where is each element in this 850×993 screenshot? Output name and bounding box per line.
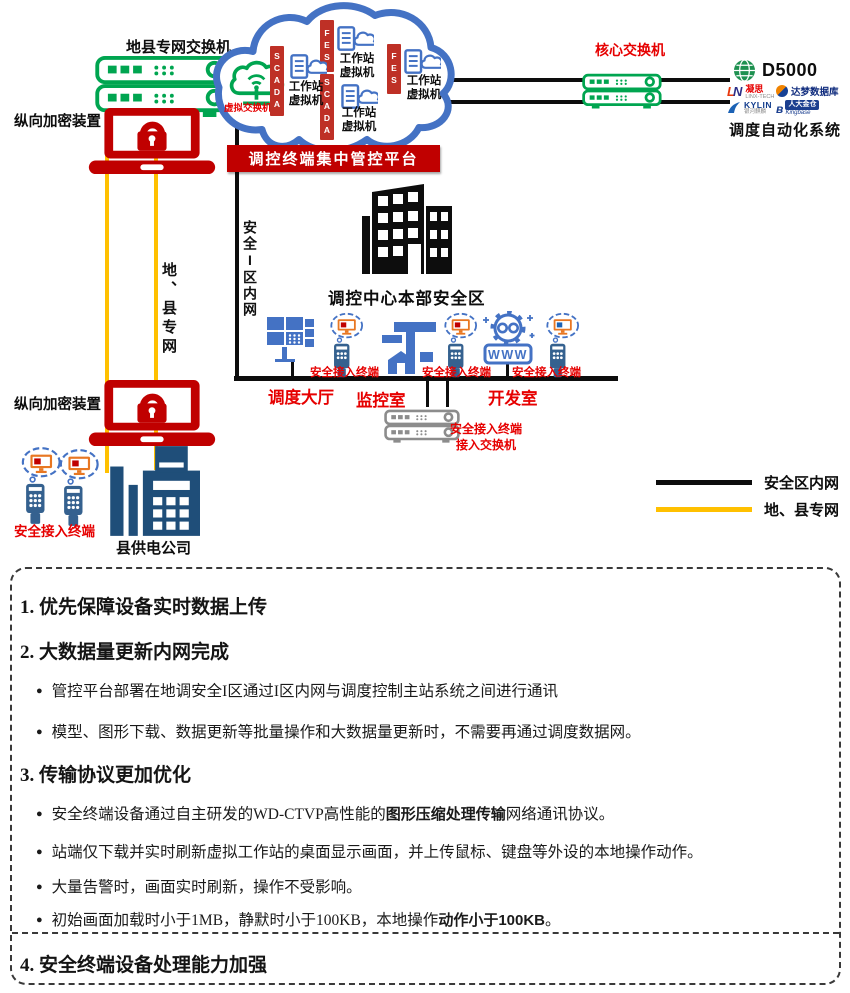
county-company-label: 县供电公司	[116, 537, 191, 558]
linx-mark-icon: LN	[727, 84, 742, 99]
workstation-vm-label: 工作站虚拟机	[338, 107, 380, 134]
network-architecture-diagram: 地县专网交换机 纵向加密装置 地、县专网 纵向加密装置	[0, 0, 850, 993]
virtual-switch-label: 虚拟交换机	[224, 100, 272, 114]
fes-bar-2: FES	[387, 44, 401, 94]
bullet-text: 初始画面加载时小于1MB，静默时小于100KB，本地操作动作小于100KB。	[52, 912, 561, 929]
workstation-vm-icon	[341, 82, 378, 110]
panel-heading-4: 4. 安全终端设备处理能力加强	[20, 950, 267, 977]
bullet-text: 大量告警时，画面实时刷新，操作不受影响。	[52, 879, 362, 896]
kylin-logo: KYLIN 银河麒麟	[727, 100, 772, 116]
annotation-panel: 1. 优先保障设备实时数据上传 2. 大数据量更新内网完成 ●管控平台部署在地调…	[10, 567, 841, 985]
encryptor-2-icon	[88, 380, 216, 448]
secure-terminal-label: 安全接入终端	[512, 364, 581, 380]
bullet-text: 模型、图形下载、数据更新等批量操作和大数据量更新时，不需要再通过调度数据网。	[52, 724, 641, 741]
legend-intranet-line	[656, 480, 752, 485]
bullet-text: 安全终端设备通过自主研发的WD-CTVP高性能的图形压缩处理传输网络通讯协议。	[52, 806, 615, 823]
bullet-item: ●大量告警时，画面实时刷新，操作不受影响。	[36, 875, 362, 897]
video-wall-icon	[266, 317, 326, 363]
secure-terminal-label: 安全接入终端	[422, 364, 491, 380]
bullet-item: ●管控平台部署在地调安全I区通过I区内网与调度控制主站系统之间进行通讯	[36, 679, 558, 701]
access-switch-line-1	[426, 379, 429, 407]
kylin-horse-icon	[727, 101, 741, 114]
bullet-item: ●安全终端设备通过自主研发的WD-CTVP高性能的图形压缩处理传输网络通讯协议。	[36, 802, 614, 824]
legend-intranet-label: 安全区内网	[764, 472, 839, 493]
workstation-vm-label: 工作站虚拟机	[285, 81, 327, 108]
legend-private-net-line	[656, 507, 752, 512]
kylin-sublabel: 银河麒麟	[744, 110, 772, 116]
secure-terminal-icon	[52, 448, 100, 528]
bullet-dot: ●	[36, 726, 43, 738]
bullet-item: ●初始画面加载时小于1MB，静默时小于100KB，本地操作动作小于100KB。	[36, 908, 561, 930]
bullet-item: ●模型、图形下载、数据更新等批量操作和大数据量更新时，不需要再通过调度数据网。	[36, 720, 641, 742]
panel-heading-1: 1. 优先保障设备实时数据上传	[20, 592, 267, 619]
panel-divider	[12, 932, 839, 934]
county-net-vertical-label: 地、县专网	[158, 262, 179, 357]
d5000-globe-icon	[733, 59, 756, 82]
bullet-item: ●站端仅下载并实时刷新虚拟工作站的桌面显示画面，并上传鼠标、键盘等外设的本地操作…	[36, 840, 703, 862]
kingbase-label: 人大金仓	[785, 100, 819, 110]
dispatch-automation-label: 调度自动化系统	[729, 119, 841, 140]
secure-terminal-label: 安全接入终端	[310, 364, 379, 380]
dev-room-www-icon: WWW	[478, 311, 538, 365]
kingbase-logo: ʙ 人大金仓 Kingbase	[776, 100, 819, 117]
control-center-label: 调控中心本部安全区	[328, 285, 486, 309]
linx-logo: LN 凝思 LINX-TECH	[727, 82, 774, 101]
panel-heading-2: 2. 大数据量更新内网完成	[20, 637, 229, 664]
kingbase-mark-icon: ʙ	[776, 102, 783, 116]
panel-heading-3: 3. 传输协议更加优化	[20, 760, 191, 787]
workstation-vm-icon	[404, 47, 441, 75]
dameng-label: 达梦数据库	[791, 84, 839, 98]
bullet-dot: ●	[36, 881, 43, 893]
hall-connector-line	[291, 361, 294, 377]
encryptor-1-icon	[88, 108, 216, 176]
county-company-building-icon	[98, 444, 200, 538]
zone1-intranet-label: 安全I区内网	[240, 220, 260, 318]
kingbase-sublabel: Kingbase	[785, 110, 810, 117]
workstation-vm-icon	[337, 24, 374, 52]
dispatch-hall-label: 调度大厅	[268, 384, 334, 408]
access-switch-line-2	[446, 379, 449, 407]
scada-bar-1: SCADA	[270, 46, 284, 116]
svg-text:WWW: WWW	[488, 348, 528, 362]
dev-room-label: 开发室	[488, 385, 538, 409]
access-switch-label-line2: 接入交换机	[450, 437, 522, 453]
core-switch-label: 核心交换机	[595, 40, 665, 60]
control-center-building-icon	[352, 180, 462, 280]
bullet-dot: ●	[36, 685, 43, 697]
access-switch-label-line1: 安全接入终端	[450, 421, 522, 437]
control-platform-banner: 调控终端集中管控平台	[227, 145, 440, 172]
bullet-dot: ●	[36, 914, 43, 926]
dameng-logo: 达梦数据库	[776, 84, 839, 98]
core-switch-icon	[582, 58, 664, 124]
workstation-vm-label: 工作站虚拟机	[403, 75, 445, 102]
bullet-text: 站端仅下载并实时刷新虚拟工作站的桌面显示画面，并上传鼠标、键盘等外设的本地操作动…	[52, 844, 703, 861]
workstation-vm-label: 工作站虚拟机	[336, 53, 378, 80]
bullet-text: 管控平台部署在地调安全I区通过I区内网与调度控制主站系统之间进行通讯	[52, 683, 558, 700]
d5000-label: D5000	[762, 60, 818, 81]
bullet-dot: ●	[36, 808, 43, 820]
access-switch-label: 安全接入终端 接入交换机	[450, 421, 522, 453]
dameng-mark-icon	[776, 85, 788, 97]
county-terminal-label: 安全接入终端	[14, 520, 95, 540]
workstation-vm-icon	[290, 52, 327, 80]
bullet-dot: ●	[36, 846, 43, 858]
legend-private-net-label: 地、县专网	[764, 499, 839, 520]
